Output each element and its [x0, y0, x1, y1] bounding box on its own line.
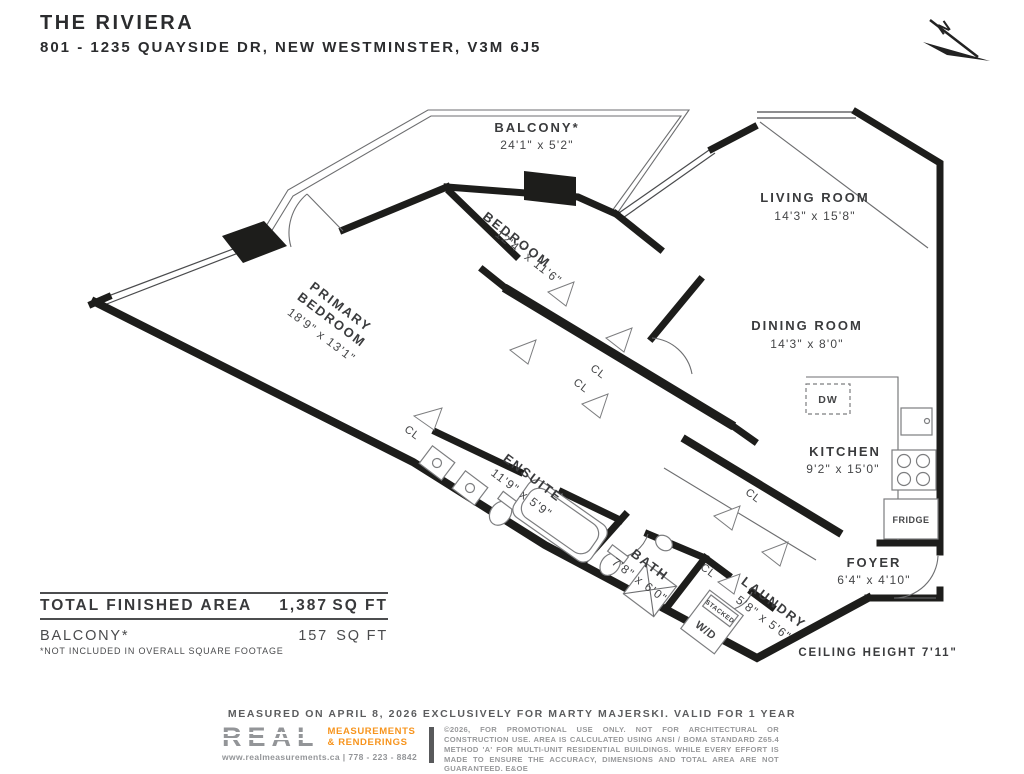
- footer-divider: [429, 727, 434, 763]
- total-area-value: 1,387: [258, 597, 328, 615]
- room-label-kitchen: KITCHEN: [809, 444, 881, 459]
- room-label-balcony: BALCONY*: [494, 120, 579, 135]
- footer: MEASURED ON APRIL 8, 2026 EXCLUSIVELY FO…: [222, 708, 802, 774]
- ensuite-vanity-sink-1: [419, 446, 455, 480]
- room-label-living-room: LIVING ROOM: [760, 190, 869, 205]
- closet-label-1: CL: [588, 362, 608, 381]
- balcony-area-label: BALCONY*: [40, 628, 258, 644]
- area-footnote: *NOT INCLUDED IN OVERALL SQUARE FOOTAGE: [40, 646, 388, 656]
- closet-label-2: CL: [571, 376, 591, 395]
- fridge-label: FRIDGE: [892, 515, 929, 525]
- room-dims-balcony: 24'1" x 5'2": [500, 138, 574, 152]
- closet-label-3: CL: [402, 423, 422, 442]
- kitchen-sink: [901, 408, 932, 435]
- ensuite-vanity-sink-2: [452, 471, 488, 505]
- room-dims-living-room: 14'3" x 15'8": [774, 209, 855, 223]
- balcony-area-value: 157: [258, 628, 328, 644]
- logo-tagline-line2: & RENDERINGS: [328, 738, 416, 749]
- total-area-label: TOTAL FINISHED AREA: [40, 597, 258, 615]
- interior-walls: [436, 192, 938, 607]
- room-dims-kitchen: 9'2" x 15'0": [806, 462, 880, 476]
- kitchen-dishwasher: DW: [806, 384, 850, 414]
- company-contact: www.realmeasurements.ca | 778 - 223 - 88…: [222, 752, 427, 762]
- balcony-area-row: BALCONY* 157 SQ FT: [40, 620, 388, 644]
- balcony-area-unit: SQ FT: [328, 628, 388, 644]
- area-summary-table: TOTAL FINISHED AREA 1,387 SQ FT BALCONY*…: [40, 592, 388, 656]
- north-arrow-icon: N: [923, 18, 990, 61]
- logo-wordmark: REAL: [222, 725, 320, 749]
- room-label-dining-room: DINING ROOM: [751, 318, 863, 333]
- measured-statement: MEASURED ON APRIL 8, 2026 EXCLUSIVELY FO…: [222, 708, 802, 720]
- room-dims-bedroom: 12'4" x 11'6": [493, 227, 565, 288]
- dishwasher-label: DW: [818, 394, 838, 406]
- room-label-foyer: FOYER: [847, 555, 902, 570]
- ceiling-height-note: CEILING HEIGHT 7'11": [798, 647, 957, 659]
- disclaimer-text: ©2026, FOR PROMOTIONAL USE ONLY. NOT FOR…: [444, 725, 779, 774]
- total-area-unit: SQ FT: [328, 597, 388, 615]
- kitchen-fridge: FRIDGE: [884, 499, 938, 539]
- room-dims-dining-room: 14'3" x 8'0": [770, 337, 844, 351]
- company-logo: REAL MEASUREMENTS & RENDERINGS www.realm…: [222, 725, 427, 762]
- kitchen-stove: [892, 450, 936, 490]
- room-dims-foyer: 6'4" x 4'10": [837, 573, 911, 587]
- logo-tagline: MEASUREMENTS & RENDERINGS: [328, 727, 416, 749]
- total-area-row: TOTAL FINISHED AREA 1,387 SQ FT: [40, 592, 388, 620]
